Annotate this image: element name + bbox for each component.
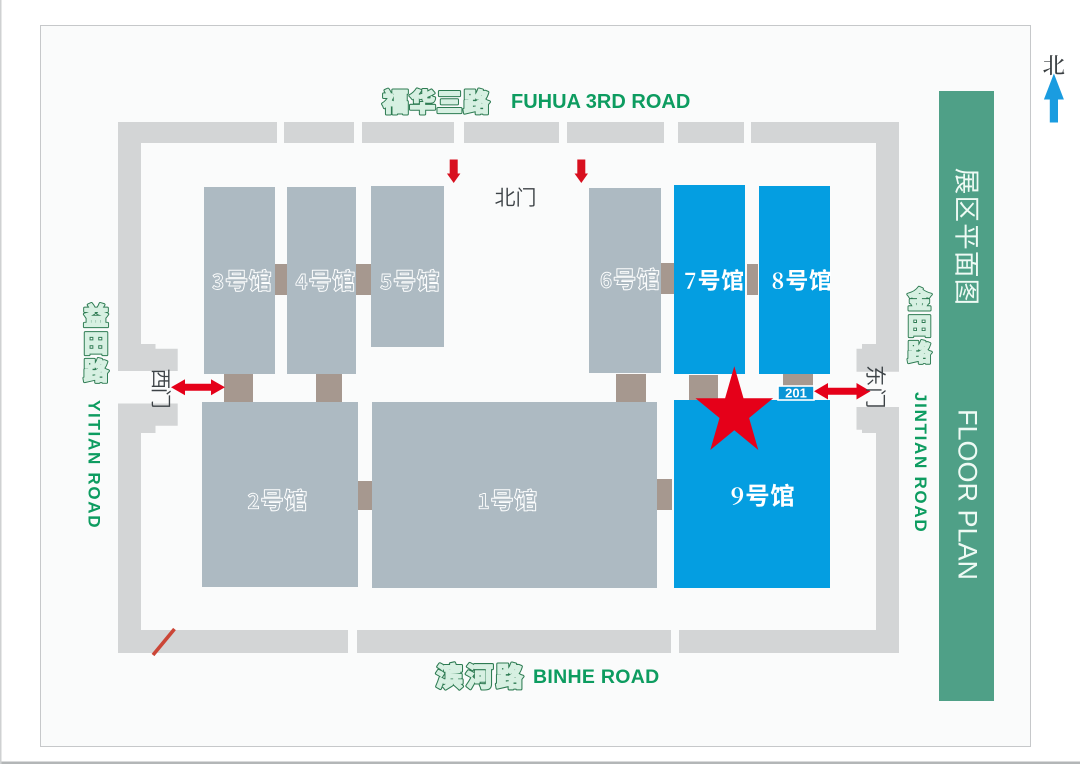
svg-text:FLOOR PLAN: FLOOR PLAN [953,409,983,580]
svg-text:JINTIAN ROAD: JINTIAN ROAD [911,392,930,533]
svg-text:BINHE ROAD: BINHE ROAD [533,666,660,688]
svg-text:FUHUA 3RD ROAD: FUHUA 3RD ROAD [511,91,690,113]
svg-text:201: 201 [785,386,807,401]
svg-text:YITIAN ROAD: YITIAN ROAD [85,400,104,529]
